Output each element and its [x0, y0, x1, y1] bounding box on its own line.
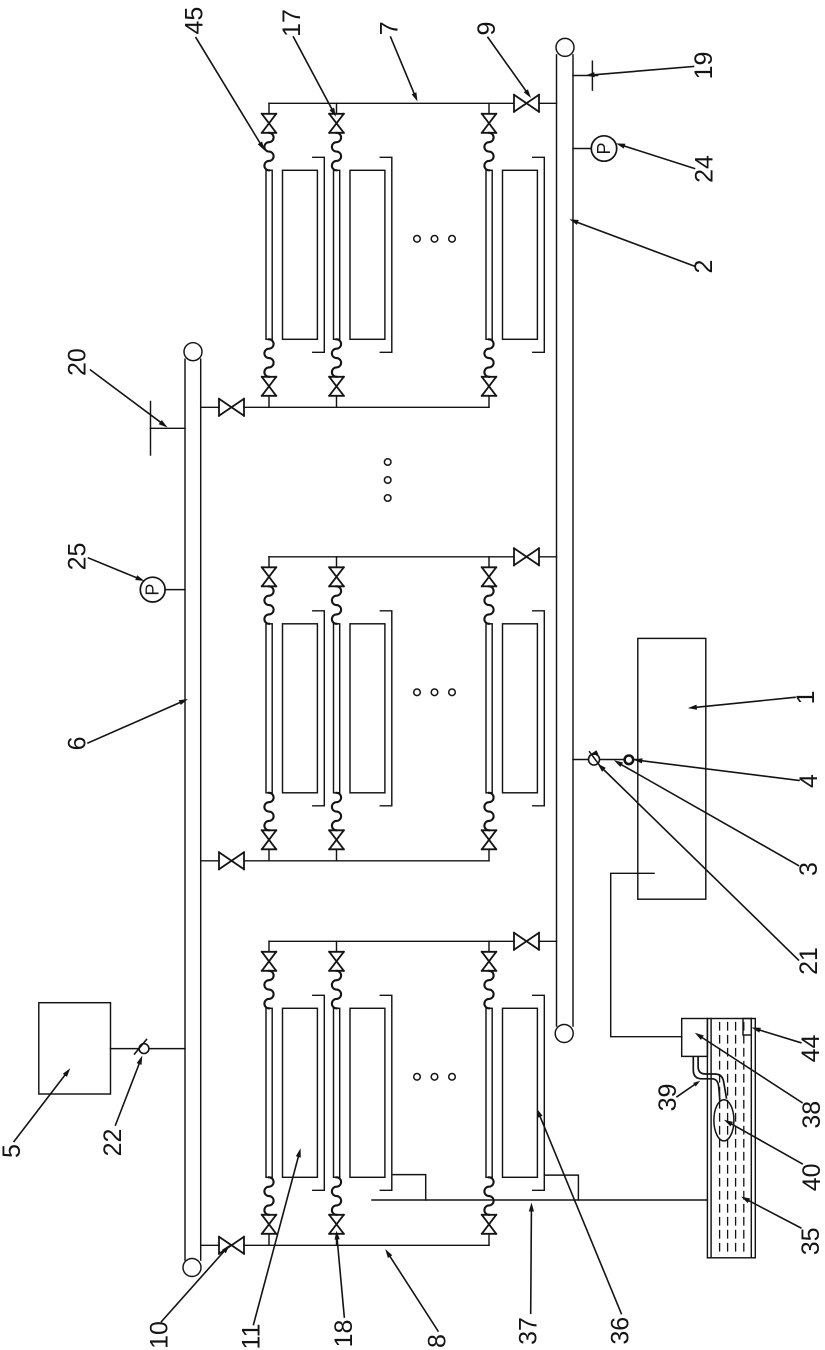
svg-text:35: 35: [797, 1227, 825, 1255]
svg-text:39: 39: [654, 1084, 682, 1112]
svg-text:8: 8: [424, 1334, 452, 1348]
svg-text:10: 10: [146, 1321, 174, 1349]
svg-text:21: 21: [795, 947, 823, 975]
svg-text:6: 6: [64, 736, 92, 750]
svg-text:22: 22: [99, 1129, 127, 1157]
svg-text:18: 18: [330, 1320, 358, 1348]
svg-text:37: 37: [514, 1317, 542, 1345]
svg-text:7: 7: [375, 21, 403, 35]
svg-text:25: 25: [64, 543, 92, 571]
svg-text:3: 3: [795, 862, 823, 876]
svg-text:38: 38: [798, 1101, 825, 1129]
svg-text:45: 45: [181, 7, 209, 35]
svg-text:19: 19: [690, 52, 718, 80]
svg-text:P: P: [143, 584, 163, 596]
svg-text:1: 1: [792, 690, 820, 704]
svg-text:5: 5: [0, 1144, 26, 1158]
svg-text:44: 44: [797, 1035, 825, 1063]
svg-text:P: P: [594, 142, 614, 154]
svg-text:20: 20: [64, 348, 92, 376]
svg-text:40: 40: [798, 1163, 825, 1191]
svg-text:17: 17: [278, 9, 306, 37]
svg-text:9: 9: [473, 22, 501, 36]
svg-text:11: 11: [238, 1324, 266, 1350]
svg-text:36: 36: [607, 1317, 635, 1345]
